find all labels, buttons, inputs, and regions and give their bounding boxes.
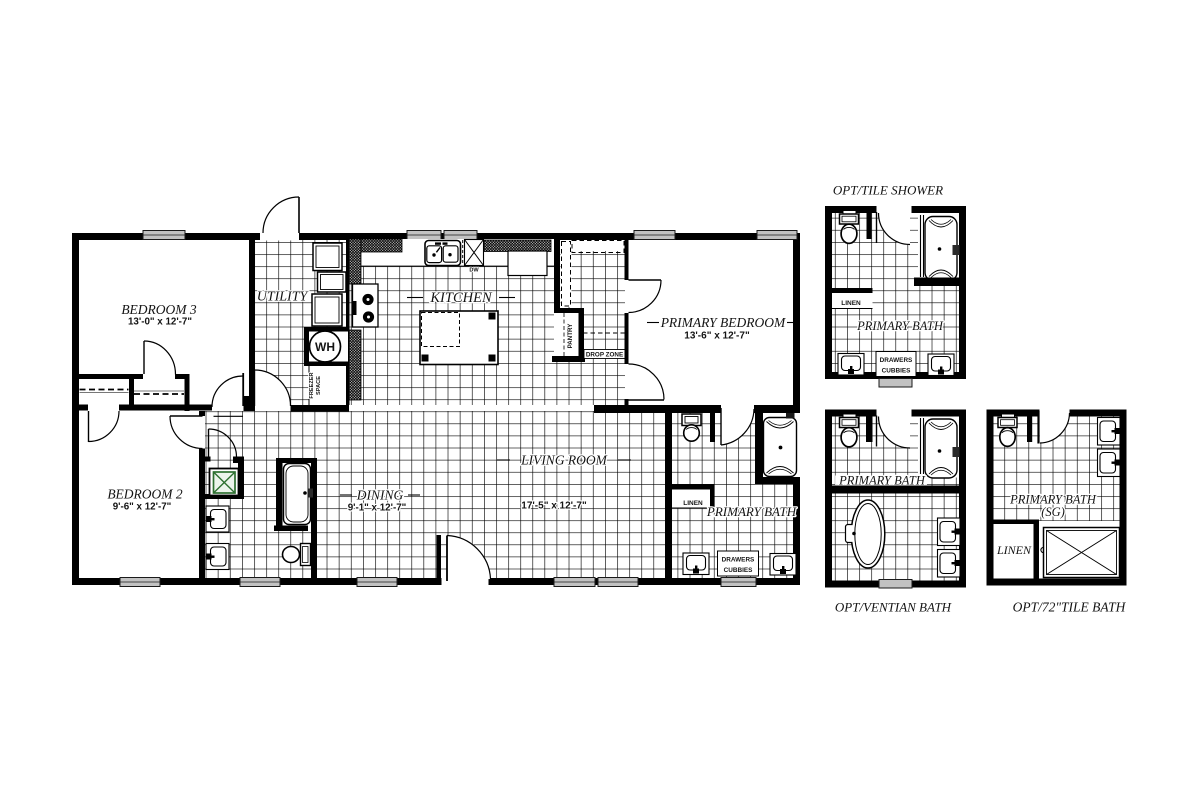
svg-text:LINEN: LINEN — [841, 300, 861, 307]
svg-text:PRIMARY BATH: PRIMARY BATH — [706, 504, 797, 519]
svg-text:PRIMARY BEDROOM: PRIMARY BEDROOM — [660, 315, 786, 330]
svg-text:LINEN: LINEN — [683, 500, 703, 507]
svg-text:DROP ZONE: DROP ZONE — [586, 352, 623, 359]
svg-text:PANTRY: PANTRY — [567, 323, 574, 349]
svg-text:PRIMARY BATH: PRIMARY BATH — [838, 474, 926, 488]
svg-text:OPT/VENTIAN BATH: OPT/VENTIAN BATH — [835, 600, 952, 615]
svg-text:DRAWERS: DRAWERS — [722, 557, 755, 564]
svg-text:CUBBIES: CUBBIES — [882, 368, 911, 375]
svg-text:9'-1" x 12'-7": 9'-1" x 12'-7" — [348, 503, 407, 514]
svg-text:CUBBIES: CUBBIES — [724, 567, 753, 574]
svg-text:WH: WH — [315, 340, 335, 354]
svg-text:9'-6" x 12'-7": 9'-6" x 12'-7" — [113, 502, 172, 513]
svg-text:DINING: DINING — [356, 488, 404, 503]
svg-text:17'-5" x 12'-7": 17'-5" x 12'-7" — [521, 501, 587, 512]
svg-text:KITCHEN: KITCHEN — [429, 290, 493, 306]
svg-text:(SG): (SG) — [1041, 505, 1065, 519]
svg-text:UTILITY: UTILITY — [257, 290, 310, 305]
svg-text:13'-0" x 12'-7": 13'-0" x 12'-7" — [128, 317, 192, 328]
svg-text:OPT/72"TILE BATH: OPT/72"TILE BATH — [1013, 600, 1127, 615]
svg-text:BEDROOM 2: BEDROOM 2 — [107, 487, 183, 502]
svg-text:13'-6" x 12'-7": 13'-6" x 12'-7" — [684, 331, 750, 342]
svg-text:BEDROOM 3: BEDROOM 3 — [121, 302, 197, 317]
svg-text:PRIMARY BATH: PRIMARY BATH — [856, 319, 944, 333]
svg-text:SPACE: SPACE — [316, 376, 322, 395]
svg-text:FREEZER: FREEZER — [309, 372, 315, 398]
svg-text:DW: DW — [469, 268, 479, 274]
svg-text:LINEN: LINEN — [996, 543, 1032, 557]
svg-text:OPT/TILE SHOWER: OPT/TILE SHOWER — [833, 183, 943, 198]
svg-text:LIVING ROOM: LIVING ROOM — [520, 453, 608, 468]
svg-text:DRAWERS: DRAWERS — [880, 357, 913, 364]
